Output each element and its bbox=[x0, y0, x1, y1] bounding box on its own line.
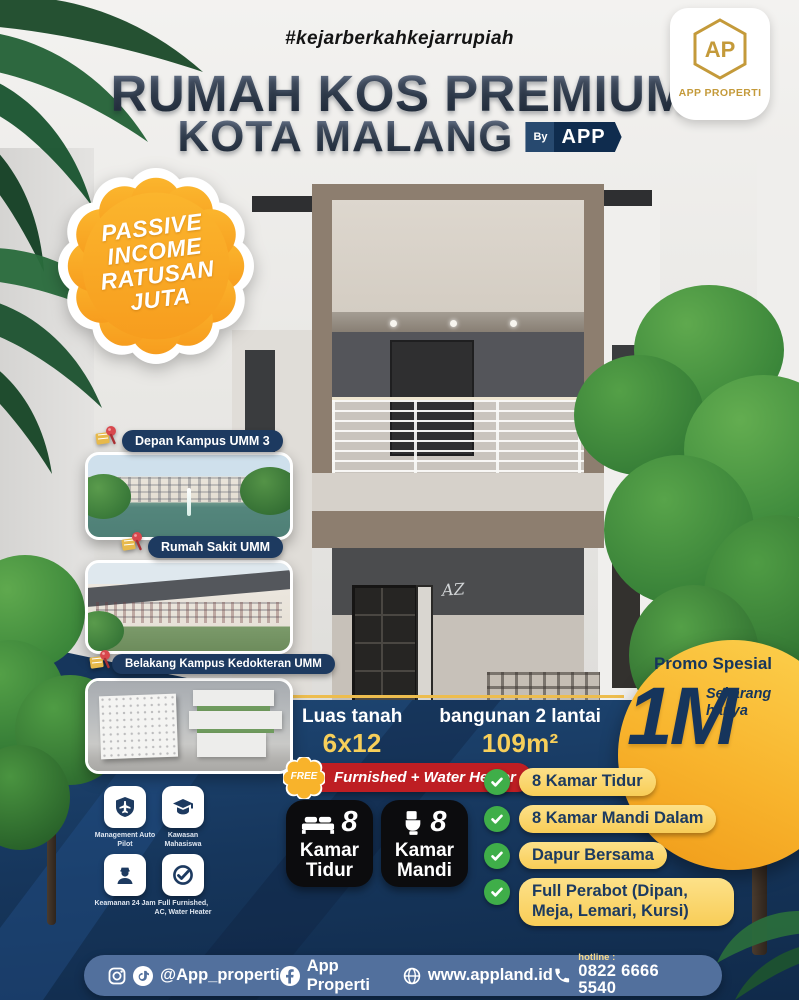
website-link[interactable]: www.appland.id bbox=[403, 966, 553, 985]
spec-value-building: 109m² bbox=[438, 728, 602, 759]
tiktok-icon bbox=[133, 966, 153, 986]
free-badge-text: FREE bbox=[283, 771, 325, 782]
check-icon bbox=[484, 879, 510, 905]
gold-accent-line bbox=[268, 695, 624, 698]
amenity-tile-security bbox=[104, 854, 146, 896]
check-icon bbox=[484, 769, 510, 795]
bedroom-count-badge: 8 Kamar Tidur bbox=[286, 800, 373, 887]
amenity-tile-students bbox=[162, 786, 204, 828]
graduation-cap-icon bbox=[172, 796, 194, 818]
security-guard-icon bbox=[114, 864, 136, 886]
by-app-badge: By APP bbox=[525, 122, 621, 152]
location-photo-1 bbox=[85, 452, 293, 540]
amenity-label-security: Keamanan 24 Jam bbox=[94, 900, 156, 909]
title-line2: KOTA MALANG bbox=[177, 112, 513, 162]
feature-item: Full Perabot (Dipan, Meja, Lemari, Kursi… bbox=[484, 878, 734, 926]
bedroom-count: 8 bbox=[341, 806, 357, 839]
location-photo-2 bbox=[85, 560, 293, 654]
logo-monogram: AP bbox=[705, 37, 736, 62]
bedroom-label-1: Kamar bbox=[300, 841, 359, 861]
feature-item: 8 Kamar Tidur bbox=[484, 768, 734, 796]
map-pin-icon bbox=[120, 530, 146, 556]
map-pin-icon bbox=[88, 648, 114, 674]
facebook-icon bbox=[280, 966, 300, 986]
feature-text: Full Perabot (Dipan, Meja, Lemari, Kursi… bbox=[519, 878, 734, 926]
feature-text: 8 Kamar Mandi Dalam bbox=[519, 805, 716, 833]
bed-icon bbox=[301, 811, 335, 834]
bathroom-label-1: Kamar bbox=[395, 841, 454, 861]
location-photo-3 bbox=[85, 678, 293, 774]
flyer: AZ #kejarberkahkejarru bbox=[0, 0, 799, 1000]
wall-signature: AZ bbox=[441, 579, 465, 600]
check-icon bbox=[484, 843, 510, 869]
bathroom-count: 8 bbox=[430, 806, 446, 839]
location-label-3: Belakang Kampus Kedokteran UMM bbox=[112, 654, 335, 674]
by-brand: APP bbox=[554, 122, 622, 152]
hotline-number: 0822 6666 5540 bbox=[578, 963, 698, 998]
location-label-2: Rumah Sakit UMM bbox=[148, 536, 283, 558]
facebook-name: App Properti bbox=[307, 957, 403, 995]
check-icon bbox=[484, 806, 510, 832]
social-facebook[interactable]: App Properti bbox=[280, 957, 403, 995]
feature-text: 8 Kamar Tidur bbox=[519, 768, 656, 796]
passive-income-badge: PASSIVE INCOME RATUSAN JUTA bbox=[58, 168, 254, 364]
amenity-label-furnished: Full Furnished, AC, Water Heater bbox=[152, 900, 214, 918]
spec-label-land: Luas tanah bbox=[282, 706, 422, 728]
instagram-handle: @App_properti bbox=[160, 966, 280, 985]
by-label: By bbox=[525, 122, 553, 152]
bedroom-label-2: Tidur bbox=[306, 861, 353, 881]
phone-icon bbox=[553, 966, 571, 985]
globe-icon bbox=[403, 967, 421, 985]
map-pin-icon bbox=[94, 424, 120, 450]
bathroom-count-badge: 8 Kamar Mandi bbox=[381, 800, 468, 887]
balcony-railing bbox=[332, 397, 584, 476]
amenity-tile-furnished bbox=[162, 854, 204, 896]
brand-name: APP PROPERTI bbox=[670, 87, 770, 99]
hexagon-logo-icon: AP bbox=[692, 18, 748, 80]
promo-price: 1M bbox=[618, 670, 744, 764]
brand-logo-tab: AP APP PROPERTI bbox=[670, 8, 770, 120]
toilet-icon bbox=[402, 809, 424, 837]
footer-contact-bar: @App_properti App Properti www.appland.i… bbox=[84, 955, 722, 996]
amenity-label-students: Kawasan Mahasiswa bbox=[152, 832, 214, 850]
feature-item: 8 Kamar Mandi Dalam bbox=[484, 805, 734, 833]
feature-text: Dapur Bersama bbox=[519, 842, 667, 870]
instagram-icon bbox=[108, 967, 126, 985]
spec-label-building: bangunan 2 lantai bbox=[438, 706, 602, 728]
amenity-tile-autopilot bbox=[104, 786, 146, 828]
shield-plane-icon bbox=[114, 796, 136, 818]
bathroom-label-2: Mandi bbox=[397, 861, 452, 881]
free-badge: FREE bbox=[283, 757, 325, 799]
location-label-1: Depan Kampus UMM 3 bbox=[122, 430, 283, 452]
website-url: www.appland.id bbox=[428, 966, 553, 985]
feature-item: Dapur Bersama bbox=[484, 842, 734, 870]
amenity-label-autopilot: Management Auto Pilot bbox=[94, 832, 156, 850]
feature-checklist: 8 Kamar Tidur 8 Kamar Mandi Dalam Dapur … bbox=[484, 768, 734, 935]
social-instagram[interactable]: @App_properti bbox=[108, 966, 280, 986]
front-door bbox=[352, 585, 418, 709]
hotline[interactable]: hotline : 0822 6666 5540 bbox=[553, 953, 698, 998]
check-circle-icon bbox=[172, 864, 194, 886]
